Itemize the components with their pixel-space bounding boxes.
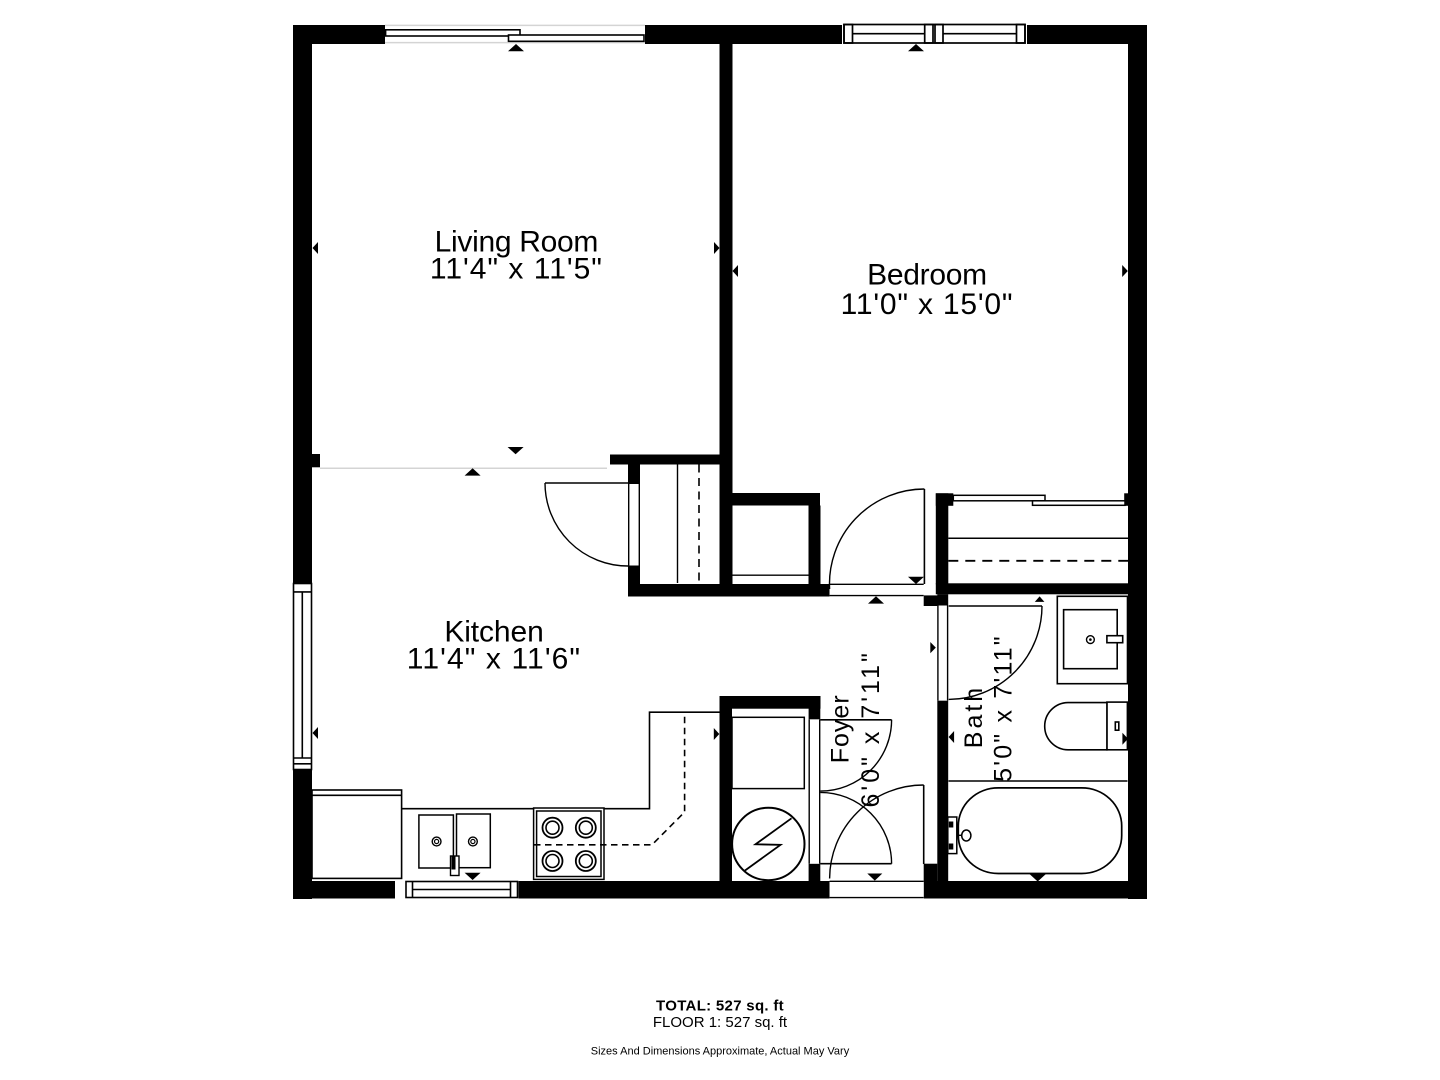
svg-text:11'4" x 11'5": 11'4" x 11'5" <box>430 253 603 286</box>
svg-text:5'0" x 7'11": 5'0" x 7'11" <box>990 634 1018 782</box>
svg-text:11'0" x 15'0": 11'0" x 15'0" <box>841 288 1014 321</box>
svg-text:Bath: Bath <box>960 685 988 748</box>
svg-text:TOTAL: 527 sq. ft: TOTAL: 527 sq. ft <box>656 998 784 1015</box>
svg-text:Sizes And Dimensions Approxima: Sizes And Dimensions Approximate, Actual… <box>591 1045 850 1057</box>
svg-text:Foyer: Foyer <box>827 694 855 763</box>
svg-text:FLOOR 1: 527 sq. ft: FLOOR 1: 527 sq. ft <box>653 1014 788 1031</box>
svg-text:6'0" x 7'11": 6'0" x 7'11" <box>857 650 885 807</box>
svg-text:11'4" x 11'6": 11'4" x 11'6" <box>407 642 581 675</box>
svg-text:Bedroom: Bedroom <box>867 259 987 292</box>
